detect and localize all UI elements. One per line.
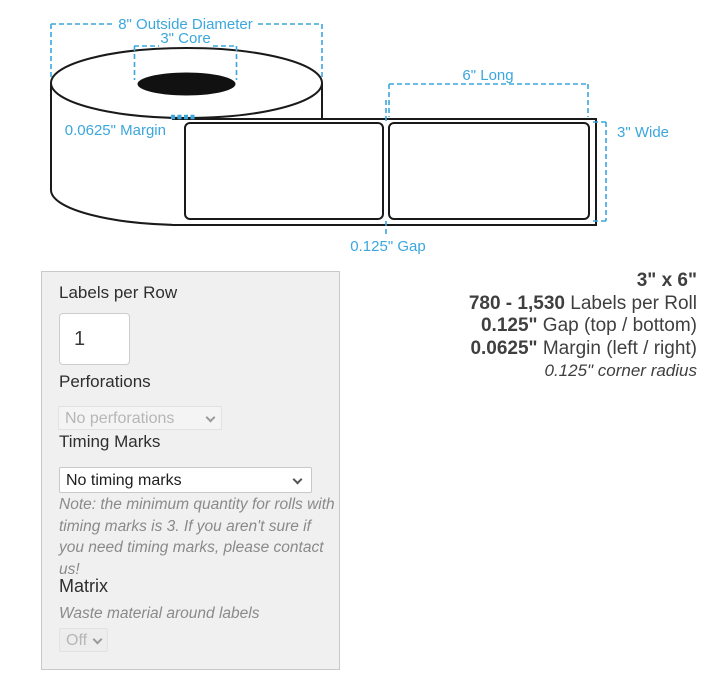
label-1 [185, 123, 383, 219]
width-label: 3" Wide [617, 124, 669, 141]
timing-marks-heading: Timing Marks [59, 432, 160, 452]
labels-per-row-heading: Labels per Row [59, 283, 177, 303]
matrix-select[interactable]: Off [59, 628, 108, 652]
perforations-select[interactable]: No perforations [58, 406, 222, 430]
matrix-heading: Matrix [59, 576, 108, 597]
spec-labels-per-roll: 780 - 1,530 Labels per Roll [469, 293, 697, 316]
roll-core-hole [138, 73, 236, 96]
matrix-description: Waste material around labels [59, 605, 259, 623]
spec-margin: 0.0625" Margin (left / right) [469, 338, 697, 361]
timing-marks-note: Note: the minimum quantity for rolls wit… [59, 494, 337, 580]
spec-corner-radius: 0.125" corner radius [469, 360, 697, 383]
length-annotation: 6" Long [389, 67, 588, 117]
perforations-heading: Perforations [59, 372, 151, 392]
margin-label: 0.0625" Margin [65, 122, 166, 139]
label-roll-diagram: 8" Outside Diameter 3" Core 0.0625" Marg… [0, 0, 717, 262]
page: 8" Outside Diameter 3" Core 0.0625" Marg… [0, 0, 717, 678]
label-2 [389, 123, 589, 219]
labels-per-row-input[interactable] [59, 313, 130, 365]
gap-label: 0.125" Gap [350, 238, 425, 255]
spec-size: 3" x 6" [469, 270, 697, 293]
spec-summary: 3" x 6" 780 - 1,530 Labels per Roll 0.12… [469, 270, 697, 383]
spec-gap: 0.125" Gap (top / bottom) [469, 315, 697, 338]
width-annotation: 3" Wide [593, 122, 669, 221]
core-label: 3" Core [160, 30, 210, 47]
length-label: 6" Long [462, 67, 513, 84]
options-panel: Labels per Row Perforations No perforati… [41, 271, 340, 670]
timing-marks-select[interactable]: No timing marks [59, 467, 312, 493]
